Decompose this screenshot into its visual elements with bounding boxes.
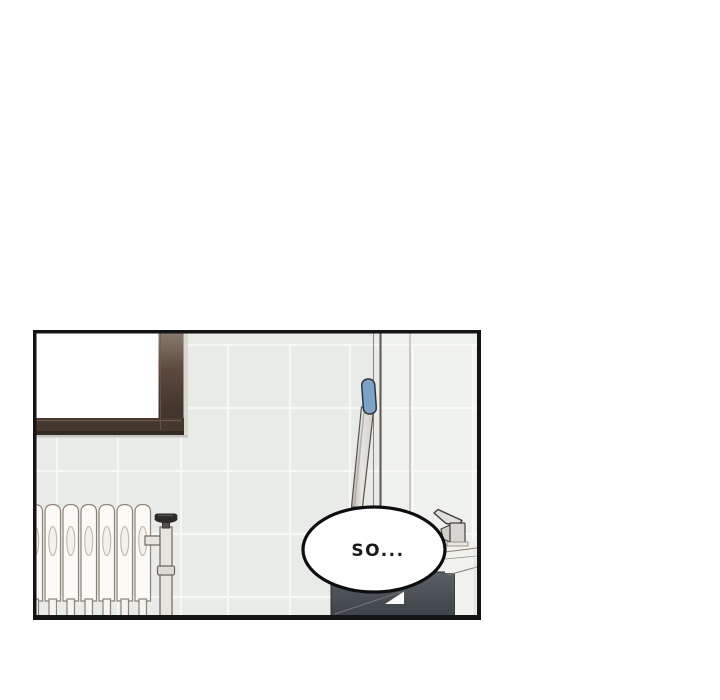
speech-bubble: SO... xyxy=(303,507,445,592)
panel-border-right xyxy=(477,330,481,620)
radiator-branch-pipe xyxy=(145,536,160,545)
window-frame-bottom-dark xyxy=(35,431,184,435)
radiator-fin xyxy=(99,505,115,618)
panel-scene: SO... xyxy=(33,330,481,620)
panel-border-bottom xyxy=(33,615,481,620)
comic-panel: SO... xyxy=(33,330,481,620)
page-background: SO... xyxy=(0,0,720,700)
radiator-fin xyxy=(117,505,133,618)
speech-bubble-text: SO... xyxy=(351,541,404,561)
radiator-fin xyxy=(81,505,97,618)
faucet-body xyxy=(450,523,465,544)
radiator-fin xyxy=(135,505,151,618)
panel-border-top xyxy=(33,330,481,334)
pipe-coupling-nut xyxy=(158,566,175,575)
radiator-fin xyxy=(45,505,61,618)
radiator-fin xyxy=(63,505,79,618)
window-frame-edge-highlight xyxy=(184,332,189,436)
mop-grip xyxy=(361,379,376,415)
radiator-valve-knob xyxy=(155,514,178,520)
faucet-base xyxy=(447,542,468,546)
window xyxy=(35,332,188,438)
window-glass xyxy=(36,332,159,419)
panel-border-left xyxy=(33,330,37,620)
window-sill-shadow xyxy=(35,435,188,438)
